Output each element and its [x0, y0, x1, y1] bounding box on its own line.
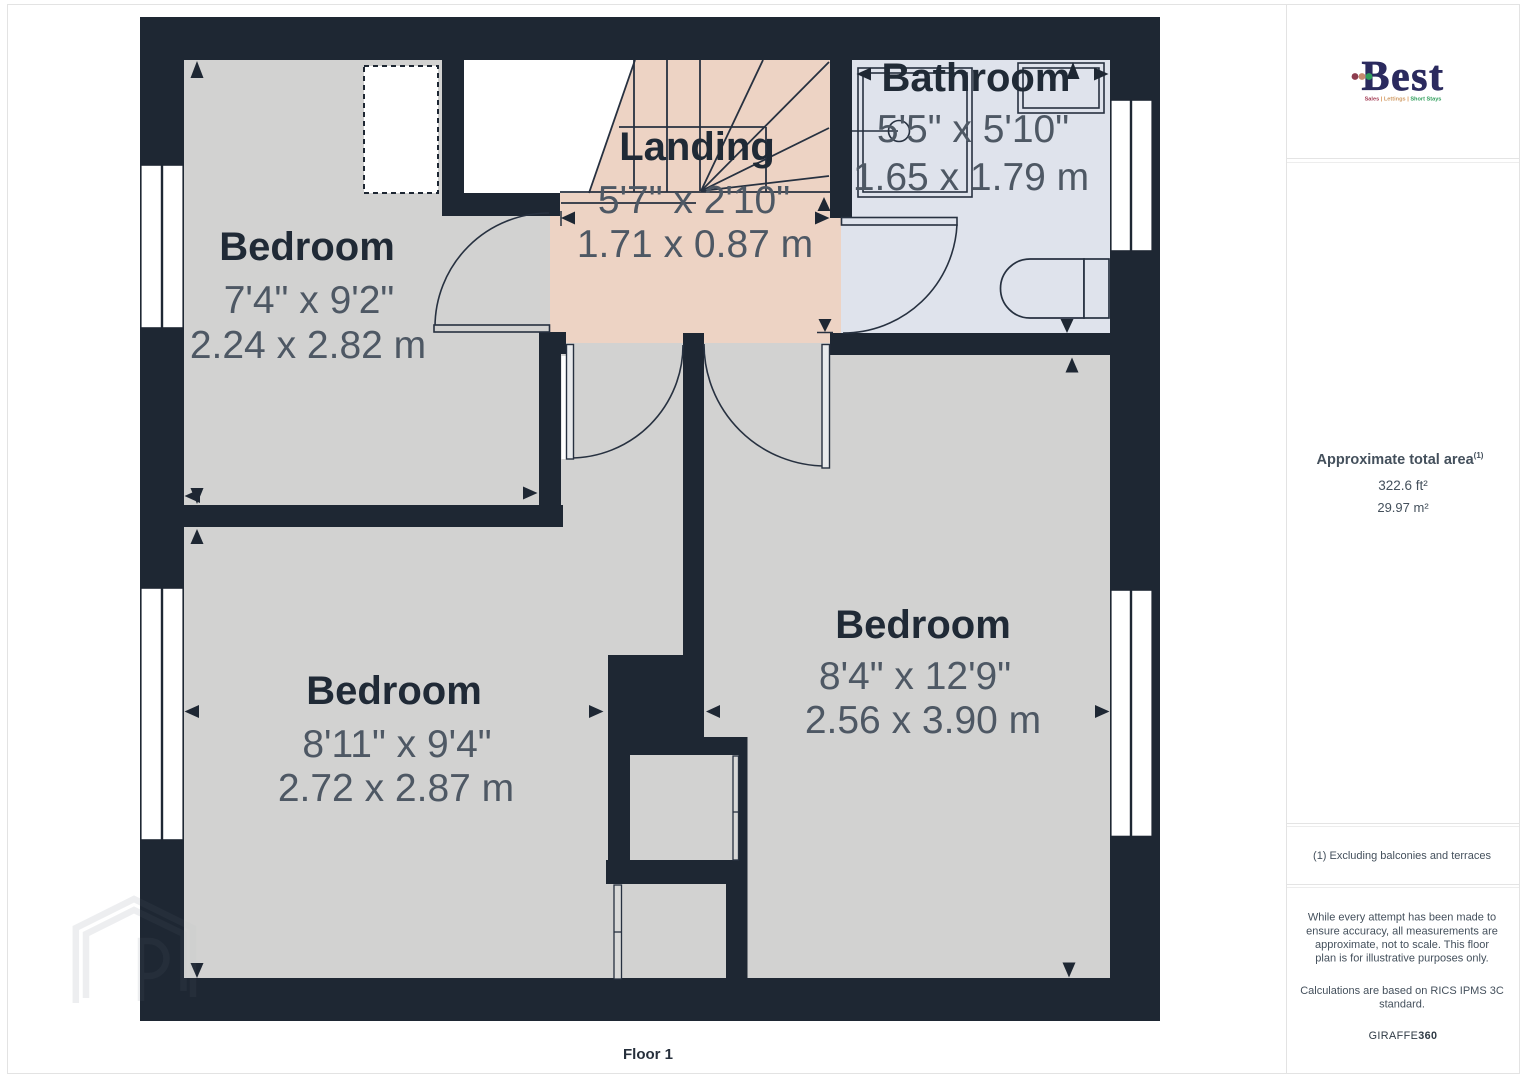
svg-text:ensure accuracy, all measureme: ensure accuracy, all measurements are	[1306, 925, 1498, 937]
svg-text:29.97 m²: 29.97 m²	[1377, 500, 1429, 515]
svg-text:5'5" x 5'10": 5'5" x 5'10"	[877, 108, 1069, 151]
svg-text:Landing: Landing	[619, 125, 775, 169]
svg-text:standard.: standard.	[1379, 999, 1425, 1011]
svg-text:While every attempt has been m: While every attempt has been made to	[1308, 912, 1496, 924]
svg-text:322.6 ft²: 322.6 ft²	[1378, 478, 1428, 493]
svg-text:Calculations are based on RICS: Calculations are based on RICS IPMS 3C	[1300, 985, 1504, 997]
svg-text:approximate, not to scale. Thi: approximate, not to scale. This floor	[1315, 939, 1489, 951]
svg-text:2.24 x 2.82 m: 2.24 x 2.82 m	[190, 324, 426, 367]
svg-text:5'7" x 2'10": 5'7" x 2'10"	[598, 179, 790, 222]
svg-text:Sales | Lettings | Short Stays: Sales | Lettings | Short Stays	[1365, 97, 1442, 103]
svg-text:Best: Best	[1362, 54, 1445, 100]
svg-text:Bedroom: Bedroom	[835, 603, 1011, 647]
svg-text:8'11" x 9'4": 8'11" x 9'4"	[302, 723, 491, 766]
svg-text:plan is for illustrative purpo: plan is for illustrative purposes only.	[1315, 953, 1488, 965]
svg-text:1.71 x 0.87 m: 1.71 x 0.87 m	[577, 223, 813, 266]
svg-text:2.56 x 3.90 m: 2.56 x 3.90 m	[805, 699, 1041, 742]
svg-text:1.65 x 1.79 m: 1.65 x 1.79 m	[853, 156, 1089, 199]
svg-text:Bedroom: Bedroom	[306, 669, 482, 713]
svg-text:7'4" x 9'2": 7'4" x 9'2"	[224, 279, 395, 322]
svg-text:Bedroom: Bedroom	[219, 225, 395, 269]
svg-text:Floor 1: Floor 1	[623, 1046, 673, 1063]
svg-text:Bathroom: Bathroom	[882, 56, 1071, 100]
svg-text:GIRAFFE360: GIRAFFE360	[1369, 1030, 1438, 1042]
svg-text:(1) Excluding balconies and te: (1) Excluding balconies and terraces	[1313, 850, 1491, 862]
svg-text:2.72 x 2.87 m: 2.72 x 2.87 m	[278, 767, 514, 810]
svg-text:Approximate total area(1): Approximate total area(1)	[1317, 451, 1484, 468]
svg-text:8'4" x 12'9": 8'4" x 12'9"	[819, 655, 1011, 698]
